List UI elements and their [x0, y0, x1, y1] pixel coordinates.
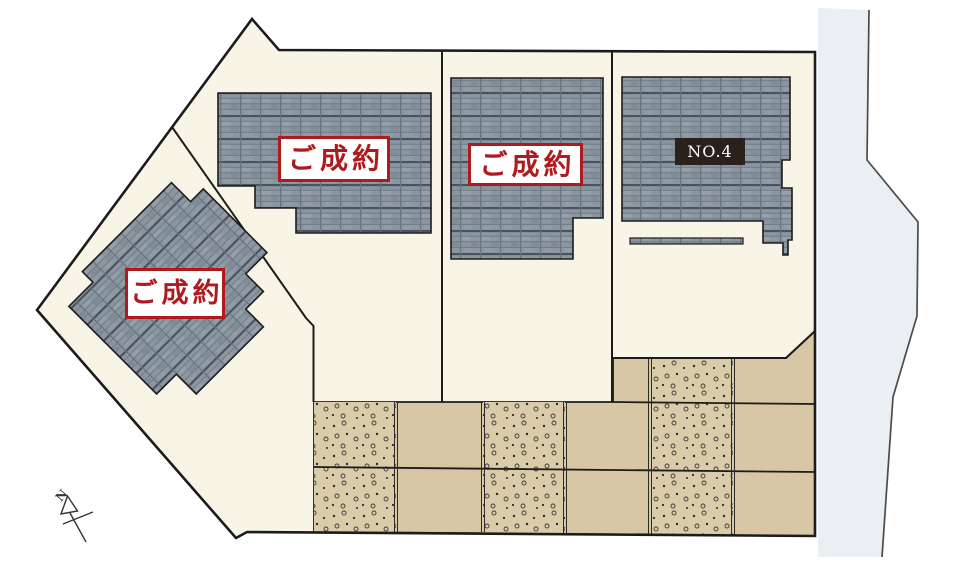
compass-crossbar — [63, 512, 93, 524]
compass: N — [53, 487, 93, 542]
lot2-sold-badge: ご成約 — [278, 136, 390, 182]
parking-stall-stippled — [650, 358, 733, 535]
house-roof-lot4-eave — [630, 238, 743, 244]
lot3-sold-badge: ご成約 — [468, 143, 583, 186]
parking-stall-stippled — [483, 402, 565, 533]
lot4-number-badge[interactable]: NO.4 — [675, 138, 745, 165]
lot1-sold-badge: ご成約 — [125, 268, 225, 319]
site-plan: N ご成約 ご成約 ご成約 NO.4 — [0, 0, 957, 583]
